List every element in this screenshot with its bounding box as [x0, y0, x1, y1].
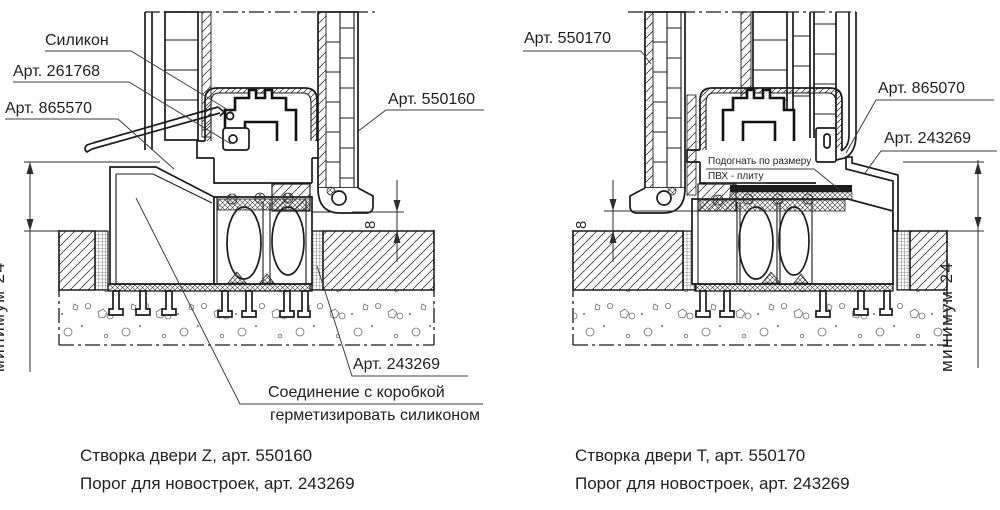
drawing-canvas — [0, 0, 1000, 510]
pvc-plate — [730, 185, 852, 192]
keeper-865070 — [816, 128, 836, 162]
label-art-865570: Арт. 865570 — [5, 99, 92, 118]
caption-right: Створка двери Т, арт. 550170 Порог для н… — [575, 442, 850, 498]
label-art-243269-right: Арт. 243269 — [884, 129, 971, 148]
dimension-label-min24-right: минимум 24 — [937, 261, 957, 372]
concrete-base — [573, 290, 947, 345]
caption-left-line2: Порог для новостроек, арт. 243269 — [80, 470, 355, 498]
door-panel-profile — [145, 12, 211, 150]
label-joint-note-line1: Соединение с коробкой — [268, 383, 445, 402]
dimension-label-8-left: 8 — [362, 221, 379, 229]
dimension-label-8-right: 8 — [573, 221, 590, 229]
dimension-label-min24-left: минимум 24 — [0, 261, 9, 372]
end-cap-261768 — [223, 128, 249, 150]
label-fit-note-line2: ПВХ - плиту — [708, 171, 764, 183]
caption-right-line1: Створка двери Т, арт. 550170 — [575, 442, 850, 470]
label-art-865070: Арт. 865070 — [878, 79, 965, 98]
caption-right-line2: Порог для новостроек, арт. 243269 — [575, 470, 850, 498]
door-frame-profile — [630, 12, 696, 213]
label-art-261768: Арт. 261768 — [13, 62, 100, 81]
right-section-drawing — [523, 12, 997, 368]
label-fit-note-line1: Подогнать по размеру — [708, 156, 811, 168]
technical-drawing-page: Силикон Арт. 261768 Арт. 865570 Арт. 550… — [0, 0, 1000, 510]
label-art-550170: Арт. 550170 — [524, 29, 611, 48]
caption-left: Створка двери Z, арт. 550160 Порог для н… — [80, 442, 355, 498]
label-art-243269-left: Арт. 243269 — [353, 355, 440, 374]
label-joint-note-line2: герметизировать силиконом — [270, 406, 480, 425]
threshold-base-plate — [108, 284, 312, 291]
door-frame-profile — [318, 12, 373, 213]
caption-left-line1: Створка двери Z, арт. 550160 — [80, 442, 355, 470]
label-silicone: Силикон — [45, 31, 109, 50]
label-art-550160: Арт. 550160 — [388, 90, 475, 109]
